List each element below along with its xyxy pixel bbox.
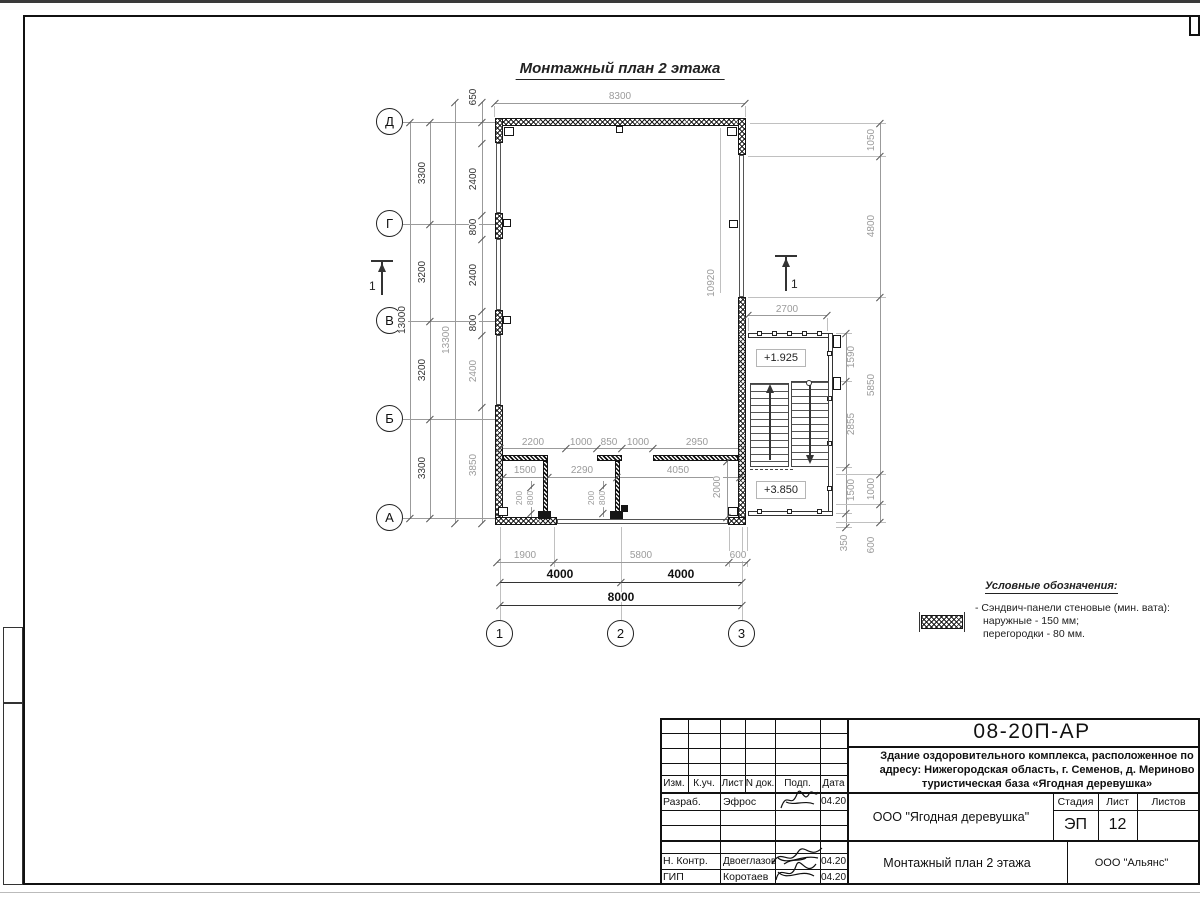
partition-foot xyxy=(621,505,628,512)
wall-left-segment xyxy=(495,118,503,143)
column-marker xyxy=(504,127,514,136)
wall-bottom-segment xyxy=(728,517,746,525)
stair-arrow-down-head xyxy=(806,455,814,464)
wall-right-segment xyxy=(738,118,746,155)
stage-value: ЭП xyxy=(1053,812,1098,838)
elevation-mark-floor: +3.850 xyxy=(756,481,806,499)
dim-line xyxy=(410,122,411,518)
legend-item: наружные - 150 мм; xyxy=(983,615,1079,627)
signature xyxy=(778,786,820,814)
tb-date: 04.20 xyxy=(820,793,847,810)
elevation-mark-upper: +1.925 xyxy=(756,349,806,367)
legend-item: - Сэндвич-панели стеновые (мин. вата): xyxy=(975,602,1170,614)
swatch-end-line xyxy=(964,612,965,632)
dimension-label: 1590 xyxy=(847,344,857,370)
signature xyxy=(770,856,828,886)
dimension-label: 5850 xyxy=(867,372,877,398)
tb-role: Н. Контр. xyxy=(660,853,723,869)
stair-arrow-down-line xyxy=(809,385,811,457)
dimension-label: 2950 xyxy=(684,438,710,448)
dimension-label: 2400 xyxy=(469,262,479,288)
elevation-value: +3.850 xyxy=(764,484,798,496)
stage-label: Стадия xyxy=(1053,793,1098,810)
dimension-label: 3850 xyxy=(469,452,479,478)
partition-wall xyxy=(543,461,548,517)
dim-line xyxy=(455,102,456,523)
axis-bubble-row: Г xyxy=(376,210,403,237)
axis-bubble-row: Б xyxy=(376,405,403,432)
extension-line xyxy=(748,318,749,331)
dimension-label: 4800 xyxy=(867,213,877,239)
dimension-label: 3200 xyxy=(418,357,428,383)
dimension-label: 2400 xyxy=(469,166,479,192)
stair-post xyxy=(817,509,822,514)
sheets-label: Листов xyxy=(1137,793,1200,810)
dimension-label: 600 xyxy=(867,535,877,556)
dimension-label: 1900 xyxy=(512,551,538,561)
tb-col-header: Лист xyxy=(720,775,745,792)
dimension-label: 2200 xyxy=(520,438,546,448)
wall-left-pier xyxy=(495,213,503,239)
extension-line xyxy=(720,128,721,293)
dimension-label: 200 xyxy=(586,489,596,507)
extension-line xyxy=(748,156,886,157)
dimension-label: 350 xyxy=(840,533,850,554)
stair-wall-protrusion xyxy=(833,377,841,390)
dimension-label: 200 xyxy=(514,489,524,507)
window-band xyxy=(496,143,501,213)
stair-arrow-up-head xyxy=(766,384,774,393)
dimension-label: 2855 xyxy=(847,411,857,437)
tb-col-header: К.уч. xyxy=(688,775,720,792)
stair-wall-protrusion xyxy=(833,335,841,348)
dim-line xyxy=(495,103,745,104)
section-mark-label: 1 xyxy=(369,279,376,293)
dim-line xyxy=(497,562,747,563)
dimension-label: 13300 xyxy=(442,324,452,356)
stair-post xyxy=(827,486,832,491)
window-band xyxy=(557,519,728,524)
column-marker xyxy=(503,219,511,227)
dimension-label: 1500 xyxy=(847,477,857,503)
dimension-label: 800 xyxy=(469,313,479,334)
stair-post xyxy=(802,331,807,336)
elevation-value: +1.925 xyxy=(764,352,798,364)
org-name: ООО "Альянс" xyxy=(1069,842,1194,883)
dimension-label: 1000 xyxy=(867,476,877,502)
window-band xyxy=(496,335,501,405)
dimension-label: 10920 xyxy=(707,267,717,299)
dimension-label: 800 xyxy=(469,217,479,238)
dimension-label: 2400 xyxy=(469,358,479,384)
axis-bubble-col: 2 xyxy=(607,620,634,647)
tb-col-header: Изм. xyxy=(660,775,688,792)
partition-wall xyxy=(503,455,548,461)
partition-foot xyxy=(610,511,623,519)
section-mark-label: 1 xyxy=(791,277,798,291)
stair-post xyxy=(787,509,792,514)
column-marker xyxy=(503,316,511,324)
stair-post xyxy=(757,331,762,336)
dimension-label: 13000 xyxy=(398,304,408,336)
dimension-label: 2290 xyxy=(569,466,595,476)
stair-arrow-up-line xyxy=(769,390,771,460)
column-marker xyxy=(727,127,737,136)
dimension-label: 8000 xyxy=(606,592,637,602)
extension-line xyxy=(494,106,495,117)
dim-line xyxy=(748,315,827,316)
dimension-label: 2700 xyxy=(774,305,800,315)
axis-bubble-col: 3 xyxy=(728,620,755,647)
dimension-label: 3300 xyxy=(418,455,428,481)
legend-title: Условные обозначения: xyxy=(985,580,1118,594)
dimension-label: 5800 xyxy=(628,551,654,561)
tb-col-header: N док. xyxy=(745,775,775,792)
doc-number: 08-20П-АР xyxy=(847,718,1200,746)
axis-bubble-row: Д xyxy=(376,108,403,135)
axis-bubble-col: 1 xyxy=(486,620,513,647)
dimension-label: 1000 xyxy=(568,438,594,448)
section-mark-arrow xyxy=(378,263,386,272)
extension-line xyxy=(750,123,886,124)
dimension-label: 4000 xyxy=(666,569,697,579)
dimension-label: 3200 xyxy=(418,259,428,285)
project-line: Здание оздоровительного комплекса, распо… xyxy=(880,749,1193,763)
dimension-label: 4050 xyxy=(665,466,691,476)
legend-item: перегородки - 80 мм. xyxy=(983,628,1085,640)
dimension-label: 1000 xyxy=(625,438,651,448)
tb-role: ГИП xyxy=(660,869,723,885)
stair-post xyxy=(787,331,792,336)
section-mark-arrow xyxy=(782,258,790,267)
client-name: ООО "Ягодная деревушка" xyxy=(849,794,1053,840)
stair-post xyxy=(827,351,832,356)
tb-name: Эфрос xyxy=(720,793,778,810)
drawing-sheet: Монтажный план 2 этажа xyxy=(0,0,1200,900)
window-band xyxy=(739,155,744,297)
sandwich-panel-swatch xyxy=(921,615,963,629)
column-marker xyxy=(729,220,738,228)
sheet-label: Лист xyxy=(1098,793,1137,810)
stair-post xyxy=(757,509,762,514)
tb-role: Разраб. xyxy=(660,793,723,810)
dimension-label: 4000 xyxy=(545,569,576,579)
extension-line xyxy=(745,106,746,117)
dim-line xyxy=(500,605,742,606)
dimension-label: 2000 xyxy=(713,474,723,500)
wall-right-segment xyxy=(738,297,746,525)
column-marker xyxy=(498,507,508,516)
stair-cut-line xyxy=(750,469,793,470)
extension-line xyxy=(748,297,886,298)
dim-line xyxy=(503,477,740,478)
tb-col-header: Дата xyxy=(820,775,847,792)
stair-post xyxy=(772,331,777,336)
drawing-name: Монтажный план 2 этажа xyxy=(849,842,1065,883)
dim-line xyxy=(880,123,881,522)
dimension-label: 800 xyxy=(525,489,535,507)
partition-wall xyxy=(615,461,620,517)
axis-line xyxy=(621,527,622,620)
stair-post xyxy=(817,331,822,336)
extension-line xyxy=(827,318,828,331)
dimension-label: 800 xyxy=(597,489,607,507)
dimension-label: 3300 xyxy=(418,160,428,186)
wall-left-pier xyxy=(495,310,503,335)
window-band xyxy=(496,239,501,310)
dimension-label: 1500 xyxy=(512,466,538,476)
project-line: адресу: Нижегородская область, г. Семено… xyxy=(880,763,1195,777)
swatch-end-line xyxy=(919,612,920,632)
axis-bubble-row: А xyxy=(376,504,403,531)
project-description: Здание оздоровительного комплекса, распо… xyxy=(847,747,1200,792)
dimension-label: 850 xyxy=(599,438,620,448)
project-line: туристическая база «Ягодная деревушка» xyxy=(922,777,1152,791)
partition-foot xyxy=(538,511,551,519)
column-marker xyxy=(616,126,623,133)
wall-top xyxy=(495,118,746,126)
dimension-label: 1050 xyxy=(867,127,877,153)
partition-wall xyxy=(653,455,738,461)
dimension-label: 8300 xyxy=(607,92,633,102)
sheet-number: 12 xyxy=(1098,812,1137,838)
